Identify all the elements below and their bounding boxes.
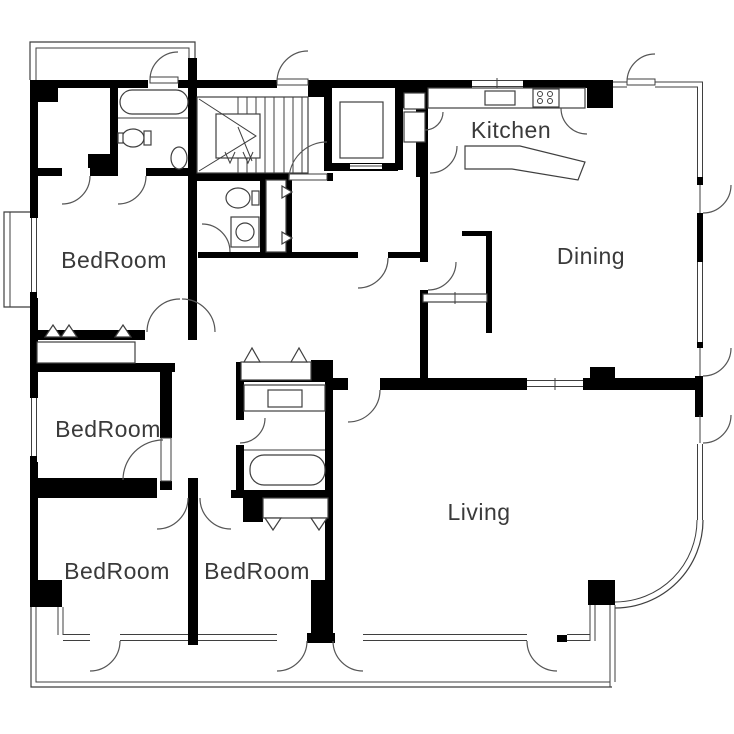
room-label-living: Living xyxy=(447,499,510,525)
room-label-kitchen: Kitchen xyxy=(471,117,551,143)
room-label-bedroom-w: BedRoom xyxy=(55,416,161,442)
elevator-icon xyxy=(340,102,383,169)
wash-basin-icon xyxy=(171,147,187,169)
room-label-bedroom-nw: BedRoom xyxy=(61,247,167,273)
toilet-icon xyxy=(226,188,259,208)
bathtub-icon xyxy=(118,90,188,118)
toilet-icon xyxy=(118,129,151,147)
room-label-bedroom-sw: BedRoom xyxy=(64,558,170,584)
room-dining xyxy=(430,180,700,380)
floor-plan-drawing: Kitchen Dining Living BedRoom BedRoom Be… xyxy=(0,0,734,734)
room-label-bedroom-s: BedRoom xyxy=(204,558,310,584)
entry-shelf-icon xyxy=(404,93,425,142)
washing-machine-icon xyxy=(231,217,259,247)
floor-plan-page: Kitchen Dining Living BedRoom BedRoom Be… xyxy=(0,0,734,734)
staircase-icon xyxy=(197,97,308,173)
vanity-counter-icon xyxy=(244,385,325,450)
room-living xyxy=(335,392,695,637)
bathtub-icon xyxy=(250,455,325,485)
room-label-dining: Dining xyxy=(557,243,625,269)
